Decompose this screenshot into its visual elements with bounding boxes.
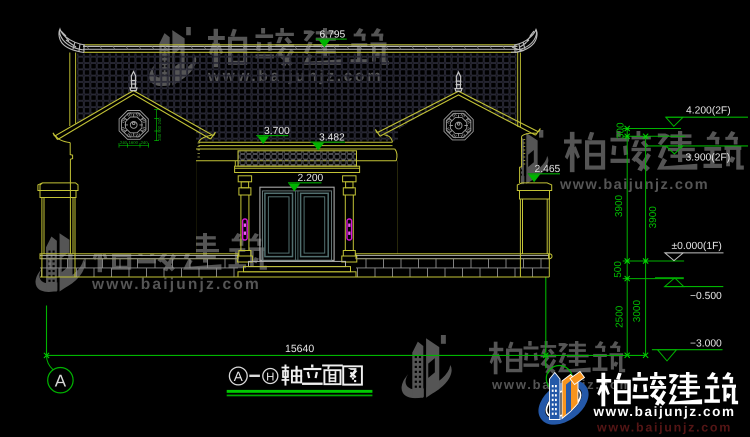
svg-text:3000: 3000 <box>632 300 643 323</box>
svg-text:2.200: 2.200 <box>298 173 324 184</box>
svg-text:3.482: 3.482 <box>319 132 345 143</box>
svg-text:500: 500 <box>613 261 624 278</box>
svg-text:3900: 3900 <box>614 194 625 217</box>
svg-text:3900: 3900 <box>648 206 659 229</box>
svg-text:240: 240 <box>120 140 128 145</box>
svg-text:H: H <box>266 371 274 383</box>
svg-text:240: 240 <box>141 140 149 145</box>
svg-text:3.700: 3.700 <box>264 126 290 137</box>
svg-text:A: A <box>55 372 67 391</box>
svg-text:www.baijunjz.com: www.baijunjz.com <box>593 404 736 419</box>
svg-text:1600: 1600 <box>129 140 139 145</box>
svg-text:2500: 2500 <box>614 305 625 328</box>
svg-text:www.baijunjz.com: www.baijunjz.com <box>559 177 709 193</box>
svg-text:−0.500: −0.500 <box>690 291 722 302</box>
svg-text:−3.000: −3.000 <box>690 339 722 350</box>
svg-text:www.baijunjz.com: www.baijunjz.com <box>596 421 732 435</box>
svg-text:300: 300 <box>616 122 627 139</box>
svg-text:±0.000(1F): ±0.000(1F) <box>672 241 722 252</box>
svg-text:A: A <box>234 369 243 384</box>
svg-text:4.200(2F): 4.200(2F) <box>686 106 731 117</box>
svg-text:3.900(2F): 3.900(2F) <box>686 153 731 164</box>
svg-text:6.795: 6.795 <box>320 29 346 40</box>
svg-text:2.465: 2.465 <box>535 164 561 175</box>
svg-text:www.baijunjz.com: www.baijunjz.com <box>91 276 261 293</box>
svg-text:15640: 15640 <box>285 343 314 355</box>
svg-text:240 900 240: 240 900 240 <box>157 117 162 141</box>
